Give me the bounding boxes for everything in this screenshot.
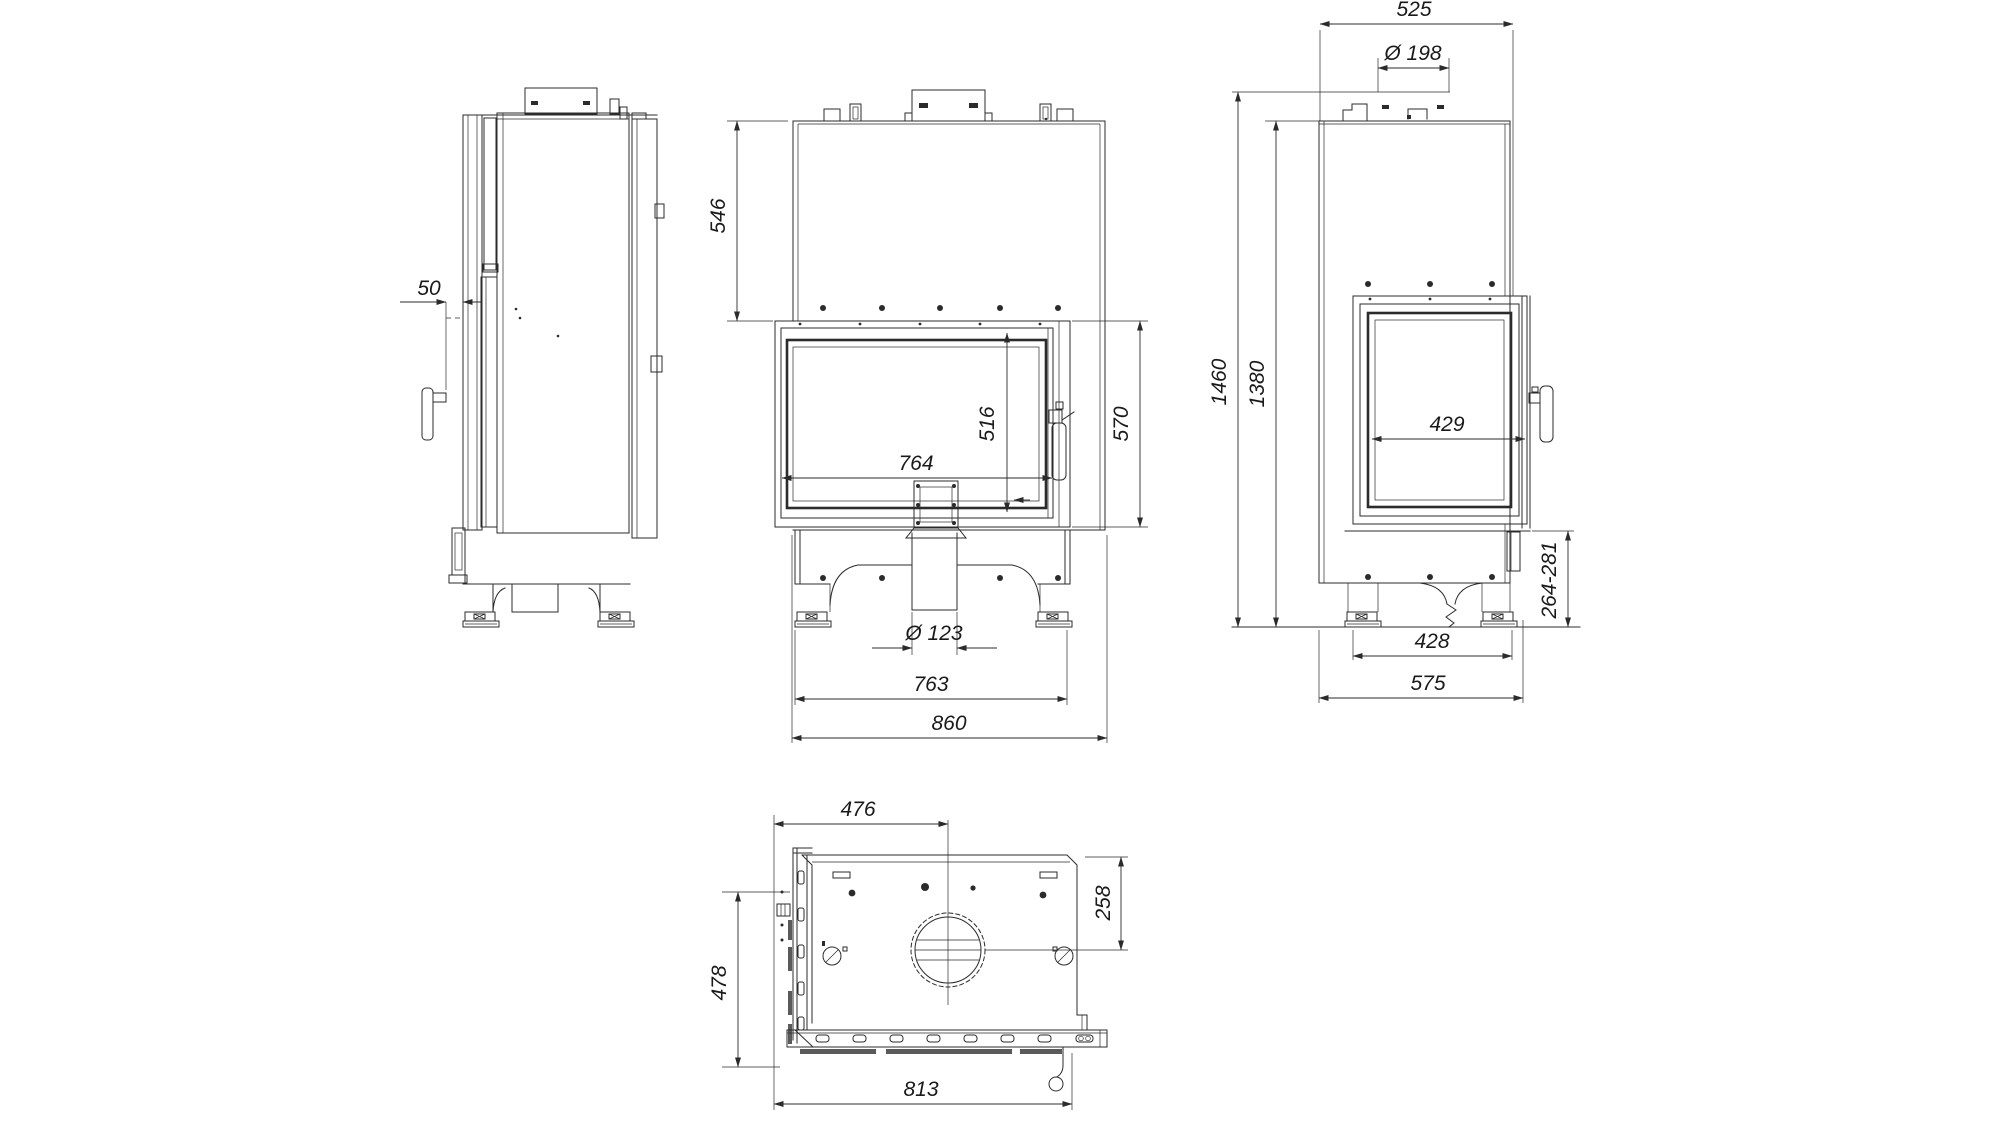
top-bracket: [525, 88, 627, 119]
dim-label-side-glass-width: 429: [1429, 413, 1464, 436]
dim-label-overall-width-with-door: 813: [903, 1078, 938, 1101]
dim-label-flue-diameter: Ø 198: [1383, 42, 1442, 65]
door-handle: [422, 388, 446, 440]
top-plate-brackets: [824, 104, 1073, 121]
dim-198: Ø 198: [1378, 42, 1449, 92]
dim-764: 764: [782, 452, 1052, 478]
side-door-handle: [1529, 386, 1553, 442]
dim-429: 429: [1372, 413, 1525, 439]
dim-label-base-width: 763: [913, 673, 948, 696]
left-frame-strip: [788, 848, 813, 1047]
body-outline: [463, 113, 664, 538]
dim-label-foot-spacing: 428: [1414, 630, 1449, 653]
flue-collar: [905, 90, 992, 121]
dim-label-front-frame-offset: 50: [417, 277, 441, 300]
dim-264-281: 264-281: [1532, 531, 1574, 627]
air-inlet: [906, 481, 966, 538]
front-base: [795, 530, 1072, 627]
drawing-page: 50: [0, 0, 2000, 1125]
front-frame-strip: [787, 1030, 1107, 1054]
dim-516: 516: [976, 333, 1007, 512]
dim-label-overall-height: 1460: [1208, 358, 1231, 405]
dim-813: 813: [774, 1053, 1072, 1110]
lower-bracket: [1507, 532, 1520, 571]
dim-label-air-inlet-diameter: Ø 123: [904, 622, 963, 645]
dim-label-overall-width: 860: [931, 712, 966, 735]
right-side-view: 525 Ø 198 1460 1380 429 264-281 42: [1208, 0, 1580, 703]
dim-label-body-height: 1380: [1246, 360, 1269, 407]
dim-1460: 1460: [1208, 92, 1238, 627]
dim-570: 570: [1072, 321, 1148, 527]
base-and-feet: [1232, 574, 1580, 627]
body-outline: [1319, 121, 1510, 583]
technical-drawing-canvas: 50: [0, 0, 2000, 1125]
left-side-view: 50: [400, 88, 664, 627]
dim-478: 478: [708, 892, 790, 1067]
top-view: 476 258 478 813: [708, 798, 1128, 1110]
shroud-outline: [793, 121, 1105, 530]
dim-546: 546: [707, 121, 788, 321]
dim-476: 476: [774, 798, 948, 1110]
dim-label-top-to-door: 546: [707, 198, 730, 233]
dim-123: Ø 123: [872, 612, 997, 655]
base-and-feet: [463, 530, 634, 627]
dim-label-depth-to-front: 478: [708, 965, 731, 1000]
dim-258: 258: [985, 857, 1128, 950]
dim-label-overall-depth: 575: [1410, 672, 1445, 695]
dim-label-glass-width: 764: [898, 452, 933, 475]
front-view: 546 570 516 764 Ø 123 763 8: [707, 90, 1148, 743]
dim-label-top-depth: 525: [1396, 0, 1431, 21]
dim-1380: 1380: [1246, 121, 1319, 627]
dim-label-left-to-flue-center: 476: [840, 798, 875, 821]
dim-label-glass-height: 516: [976, 406, 999, 441]
body-outline: [802, 855, 1087, 1030]
dim-label-back-to-flue-center: 258: [1092, 885, 1115, 921]
dim-50: 50: [400, 277, 481, 390]
top-marks: [1232, 92, 1450, 121]
front-door: [775, 321, 1070, 527]
handle-top-view: [1049, 1048, 1063, 1091]
flue-outlet: [911, 820, 985, 1005]
dim-label-plinth-height-range: 264-281: [1538, 541, 1561, 619]
dim-428: 428: [1353, 630, 1512, 660]
lower-front-bracket: [449, 528, 467, 583]
dim-label-door-height: 570: [1110, 406, 1133, 441]
